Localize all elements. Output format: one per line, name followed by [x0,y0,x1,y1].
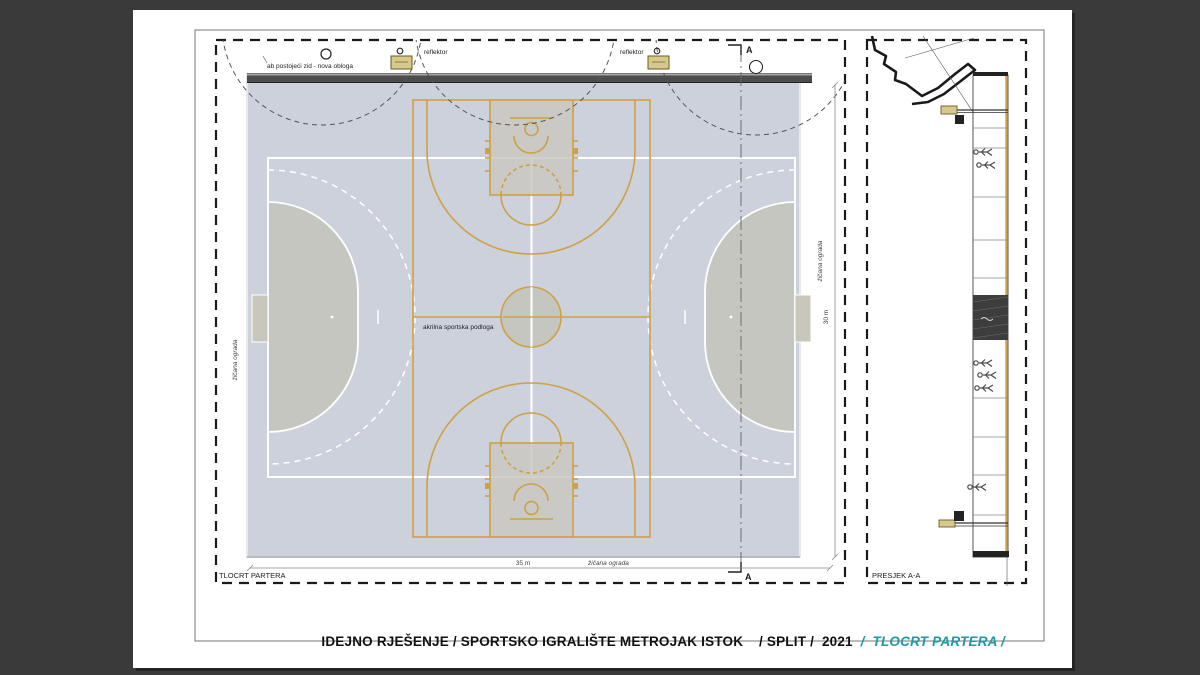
existing-wall [247,73,812,83]
terrain-outline [872,36,975,104]
wall-label: ab postojeći zid - nova obloga [267,63,353,70]
dim-width-label: 35 m [516,560,530,567]
fence-label-left: žičana ograda [232,339,239,381]
title-line-1: IDEJNO RJEŠENJE / SPORTSKO IGRALIŠTE MET… [321,634,1005,649]
handball-goal-left [252,295,268,342]
section-view: PRESJEK A-A [867,36,1026,586]
section-view-label: PRESJEK A-A [872,571,920,580]
section-marker-top: A [746,45,753,55]
reflector-symbol-1 [391,48,412,69]
reflector-symbol-2 [648,48,669,69]
fence-label-right: žičana ograda [817,240,824,282]
drawing-canvas: ab postojeći zid - nova obloga reflektor… [133,10,1072,668]
plan-view: ab postojeći zid - nova obloga reflektor… [216,10,856,583]
section-marker-circle [750,61,763,74]
dim-height-label: 30 m [823,310,830,324]
dimension-bottom: 35 m žičana ograda [247,560,833,571]
title-view-name: / TLOCRT PARTERA / [853,634,1005,649]
reflector-label-2: reflektor [620,49,644,56]
wall-marker-circle [321,49,331,59]
hatched-block [973,295,1008,340]
viewer-background: ab postojeći zid - nova obloga reflektor… [0,0,1200,675]
section-marker-bottom: A [745,572,752,582]
title-block: IDEJNO RJEŠENJE / SPORTSKO IGRALIŠTE MET… [321,598,1005,675]
dimension-right: 30 m žičana ograda [817,82,838,560]
title-main: IDEJNO RJEŠENJE / SPORTSKO IGRALIŠTE MET… [321,634,852,649]
reflector-label-1: reflektor [424,49,448,56]
drawing-sheet: ab postojeći zid - nova obloga reflektor… [133,10,1072,668]
fence-label-bottom: žičana ograda [587,560,629,567]
plan-view-label: TLOCRT PARTERA [219,571,286,580]
surface-label: akrilna sportska podloga [423,324,494,331]
handball-goal-right [795,295,811,342]
